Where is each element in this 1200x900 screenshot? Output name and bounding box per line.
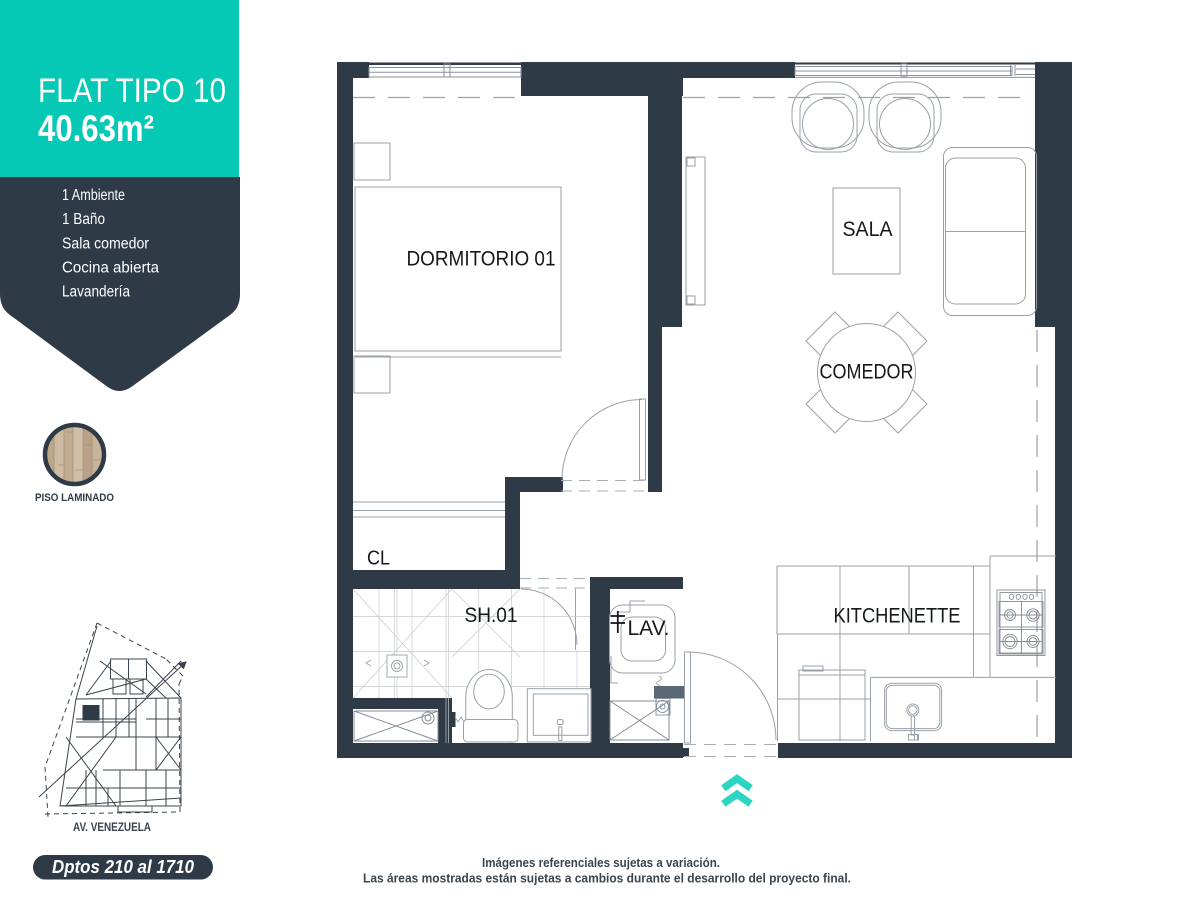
svg-text:Cocina abierta: Cocina abierta <box>62 260 159 277</box>
svg-text:FLAT TIPO 10: FLAT TIPO 10 <box>38 72 226 110</box>
svg-text:DORMITORIO 01: DORMITORIO 01 <box>407 247 556 271</box>
svg-text:PISO LAMINADO: PISO LAMINADO <box>35 492 114 504</box>
svg-text:Dptos 210 al 1710: Dptos 210 al 1710 <box>52 856 195 877</box>
svg-text:1 Baño: 1 Baño <box>62 211 105 228</box>
svg-text:AV. VENEZUELA: AV. VENEZUELA <box>73 822 151 834</box>
svg-text:KITCHENETTE: KITCHENETTE <box>834 604 961 628</box>
svg-text:Imágenes referenciales sujetas: Imágenes referenciales sujetas a variaci… <box>482 855 720 870</box>
svg-text:1 Ambiente: 1 Ambiente <box>62 187 125 204</box>
svg-text:Lavandería: Lavandería <box>62 284 130 301</box>
svg-text:COMEDOR: COMEDOR <box>820 360 914 384</box>
svg-text:Sala comedor: Sala comedor <box>62 236 149 253</box>
svg-text:40.63m²: 40.63m² <box>38 108 154 149</box>
svg-text:LAV.: LAV. <box>628 616 670 640</box>
svg-text:SALA: SALA <box>843 217 894 241</box>
svg-text:Las áreas mostradas están suje: Las áreas mostradas están sujetas a camb… <box>363 871 851 886</box>
svg-text:CL: CL <box>367 547 390 570</box>
svg-text:SH.01: SH.01 <box>465 603 518 627</box>
